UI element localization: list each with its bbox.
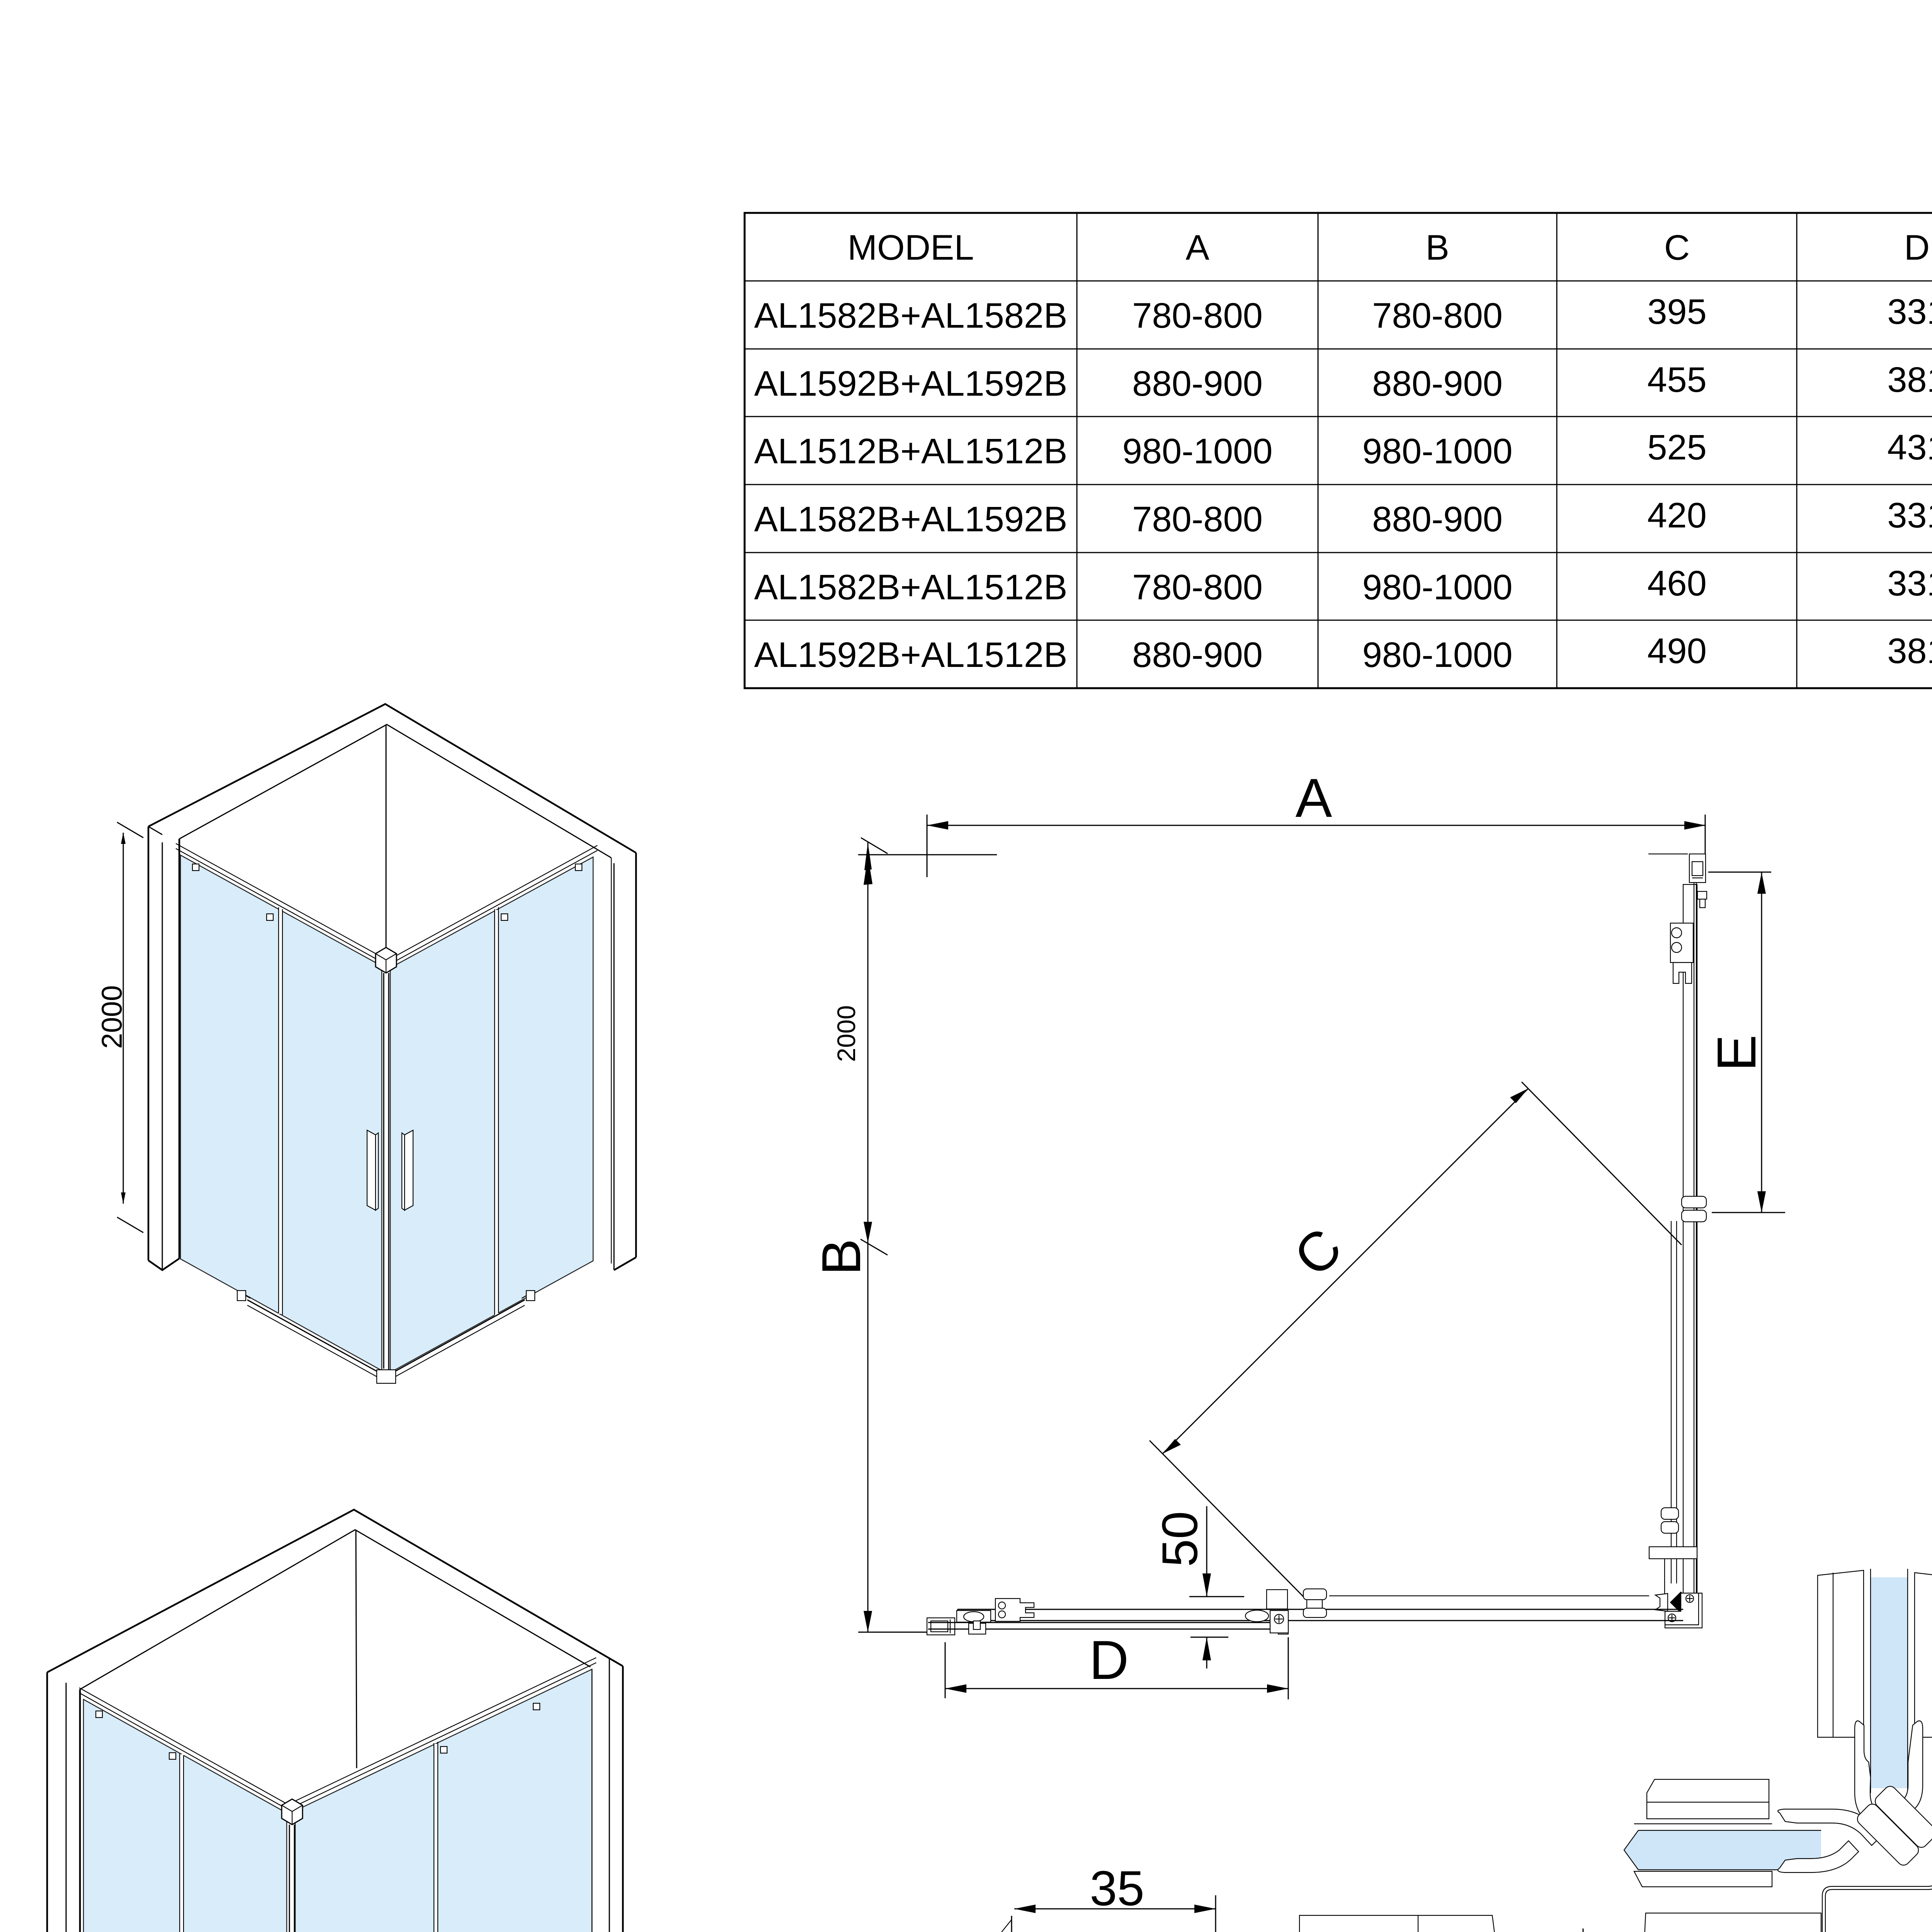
svg-text:331: 331 bbox=[1887, 292, 1932, 332]
svg-text:50: 50 bbox=[1151, 1511, 1208, 1567]
svg-text:980-1000: 980-1000 bbox=[1122, 432, 1273, 471]
svg-text:B: B bbox=[811, 1239, 872, 1276]
svg-text:525: 525 bbox=[1647, 428, 1707, 467]
svg-text:2000: 2000 bbox=[96, 985, 128, 1049]
svg-text:D: D bbox=[1089, 1629, 1129, 1691]
svg-text:A: A bbox=[1185, 228, 1209, 267]
svg-text:MODEL: MODEL bbox=[847, 228, 974, 267]
svg-text:AL1582B+AL1512B: AL1582B+AL1512B bbox=[754, 568, 1068, 607]
svg-text:D: D bbox=[1904, 228, 1930, 267]
svg-text:35: 35 bbox=[1090, 1861, 1144, 1916]
svg-text:880-900: 880-900 bbox=[1372, 500, 1503, 539]
svg-text:381: 381 bbox=[1887, 631, 1932, 671]
svg-text:A: A bbox=[1296, 767, 1332, 829]
svg-text:AL1592B+AL1512B: AL1592B+AL1512B bbox=[754, 635, 1068, 675]
svg-text:2000: 2000 bbox=[832, 1005, 861, 1062]
svg-text:AL1582B+AL1582B: AL1582B+AL1582B bbox=[754, 296, 1068, 335]
svg-text:C: C bbox=[1664, 228, 1690, 267]
svg-text:381: 381 bbox=[1887, 360, 1932, 400]
svg-text:AL1582B+AL1592B: AL1582B+AL1592B bbox=[754, 500, 1068, 539]
svg-text:455: 455 bbox=[1647, 360, 1707, 400]
svg-text:880-900: 880-900 bbox=[1132, 364, 1263, 403]
svg-text:B: B bbox=[1425, 228, 1449, 267]
svg-text:AL1512B+AL1512B: AL1512B+AL1512B bbox=[754, 432, 1068, 471]
svg-text:780-800: 780-800 bbox=[1132, 500, 1263, 539]
svg-text:880-900: 880-900 bbox=[1372, 364, 1503, 403]
svg-text:395: 395 bbox=[1647, 292, 1707, 332]
svg-text:980-1000: 980-1000 bbox=[1362, 432, 1513, 471]
svg-text:780-800: 780-800 bbox=[1132, 568, 1263, 607]
svg-text:980-1000: 980-1000 bbox=[1362, 635, 1513, 675]
svg-text:490: 490 bbox=[1647, 631, 1707, 671]
svg-text:331: 331 bbox=[1887, 564, 1932, 603]
svg-text:E: E bbox=[1706, 1035, 1767, 1071]
svg-text:880-900: 880-900 bbox=[1132, 635, 1263, 675]
svg-text:780-800: 780-800 bbox=[1132, 296, 1263, 335]
svg-text:331: 331 bbox=[1887, 496, 1932, 535]
svg-text:431: 431 bbox=[1887, 428, 1932, 467]
svg-text:420: 420 bbox=[1647, 496, 1707, 535]
svg-text:460: 460 bbox=[1647, 564, 1707, 603]
svg-text:AL1592B+AL1592B: AL1592B+AL1592B bbox=[754, 364, 1068, 403]
svg-text:780-800: 780-800 bbox=[1372, 296, 1503, 335]
svg-text:980-1000: 980-1000 bbox=[1362, 568, 1513, 607]
